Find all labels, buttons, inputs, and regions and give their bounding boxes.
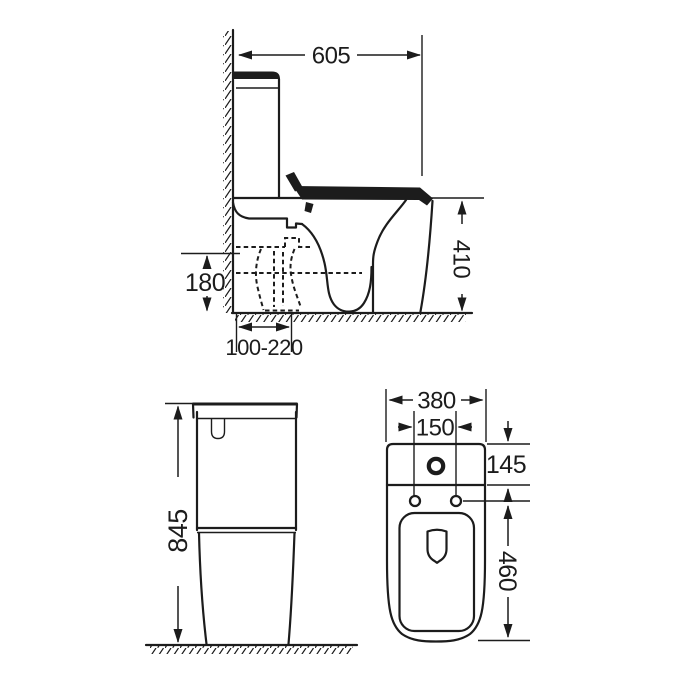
cistern-lid-top <box>233 72 280 80</box>
dim-fixing-centres: 150 <box>398 411 472 496</box>
dim-outlet-height-label: 180 <box>185 269 225 297</box>
dim-rim-height-label: 410 <box>448 240 475 279</box>
trap-pipe-left <box>256 249 264 310</box>
cistern-side-profile <box>233 72 280 199</box>
dim-pan-length-label: 460 <box>493 551 521 591</box>
diagram-canvas: 605 410 180 100-220 <box>0 0 700 700</box>
bowl-profile <box>233 200 433 312</box>
dim-overall-height-label: 845 <box>163 509 193 553</box>
cistern-front-profile <box>193 404 298 644</box>
trap-pipe-right <box>291 249 302 308</box>
pan-plan-outline <box>387 444 485 642</box>
dim-overall-depth: 605 <box>239 35 422 176</box>
rim-underside <box>233 203 302 228</box>
seat-bar <box>293 186 433 206</box>
dim-outlet-setout-label: 100-220 <box>225 335 303 360</box>
flush-inlet-shield <box>428 530 447 563</box>
dim-fixing-centres-label: 150 <box>416 415 455 442</box>
front-skirt <box>421 201 433 312</box>
dim-overall-height: 845 <box>163 404 197 643</box>
dim-cistern-depth: 145 <box>463 421 530 502</box>
side-view: 605 410 180 100-220 <box>181 30 484 360</box>
base-left-side <box>199 533 207 644</box>
front-floor-hatch <box>150 646 353 654</box>
bowl-interior <box>302 224 372 312</box>
trap-dash-inlet <box>285 238 310 247</box>
dim-overall-width-label: 380 <box>417 388 456 415</box>
dim-rim-height: 410 <box>429 198 484 311</box>
floor-hatch <box>235 314 466 322</box>
base-right-side <box>289 533 295 644</box>
dim-cistern-depth-label: 145 <box>486 451 526 479</box>
plan-view: 380 150 145 460 <box>386 388 530 642</box>
trapway-front <box>373 200 406 312</box>
concealed-trap-outline <box>236 238 362 311</box>
dim-overall-depth-label: 605 <box>312 43 351 70</box>
seat-lid-profile <box>286 172 434 213</box>
seat-hinge <box>286 172 304 192</box>
tank-keyhole-detail <box>212 419 225 439</box>
toilet-dimension-diagram: 605 410 180 100-220 <box>0 0 700 700</box>
lid-left-edge <box>193 404 194 418</box>
cistern-plan-outline <box>387 444 485 485</box>
fixing-hole-left <box>410 496 420 506</box>
seat-bumper <box>305 202 314 213</box>
front-view: 845 <box>146 404 357 655</box>
fixing-hole-right <box>451 496 461 506</box>
flush-button <box>429 459 443 473</box>
